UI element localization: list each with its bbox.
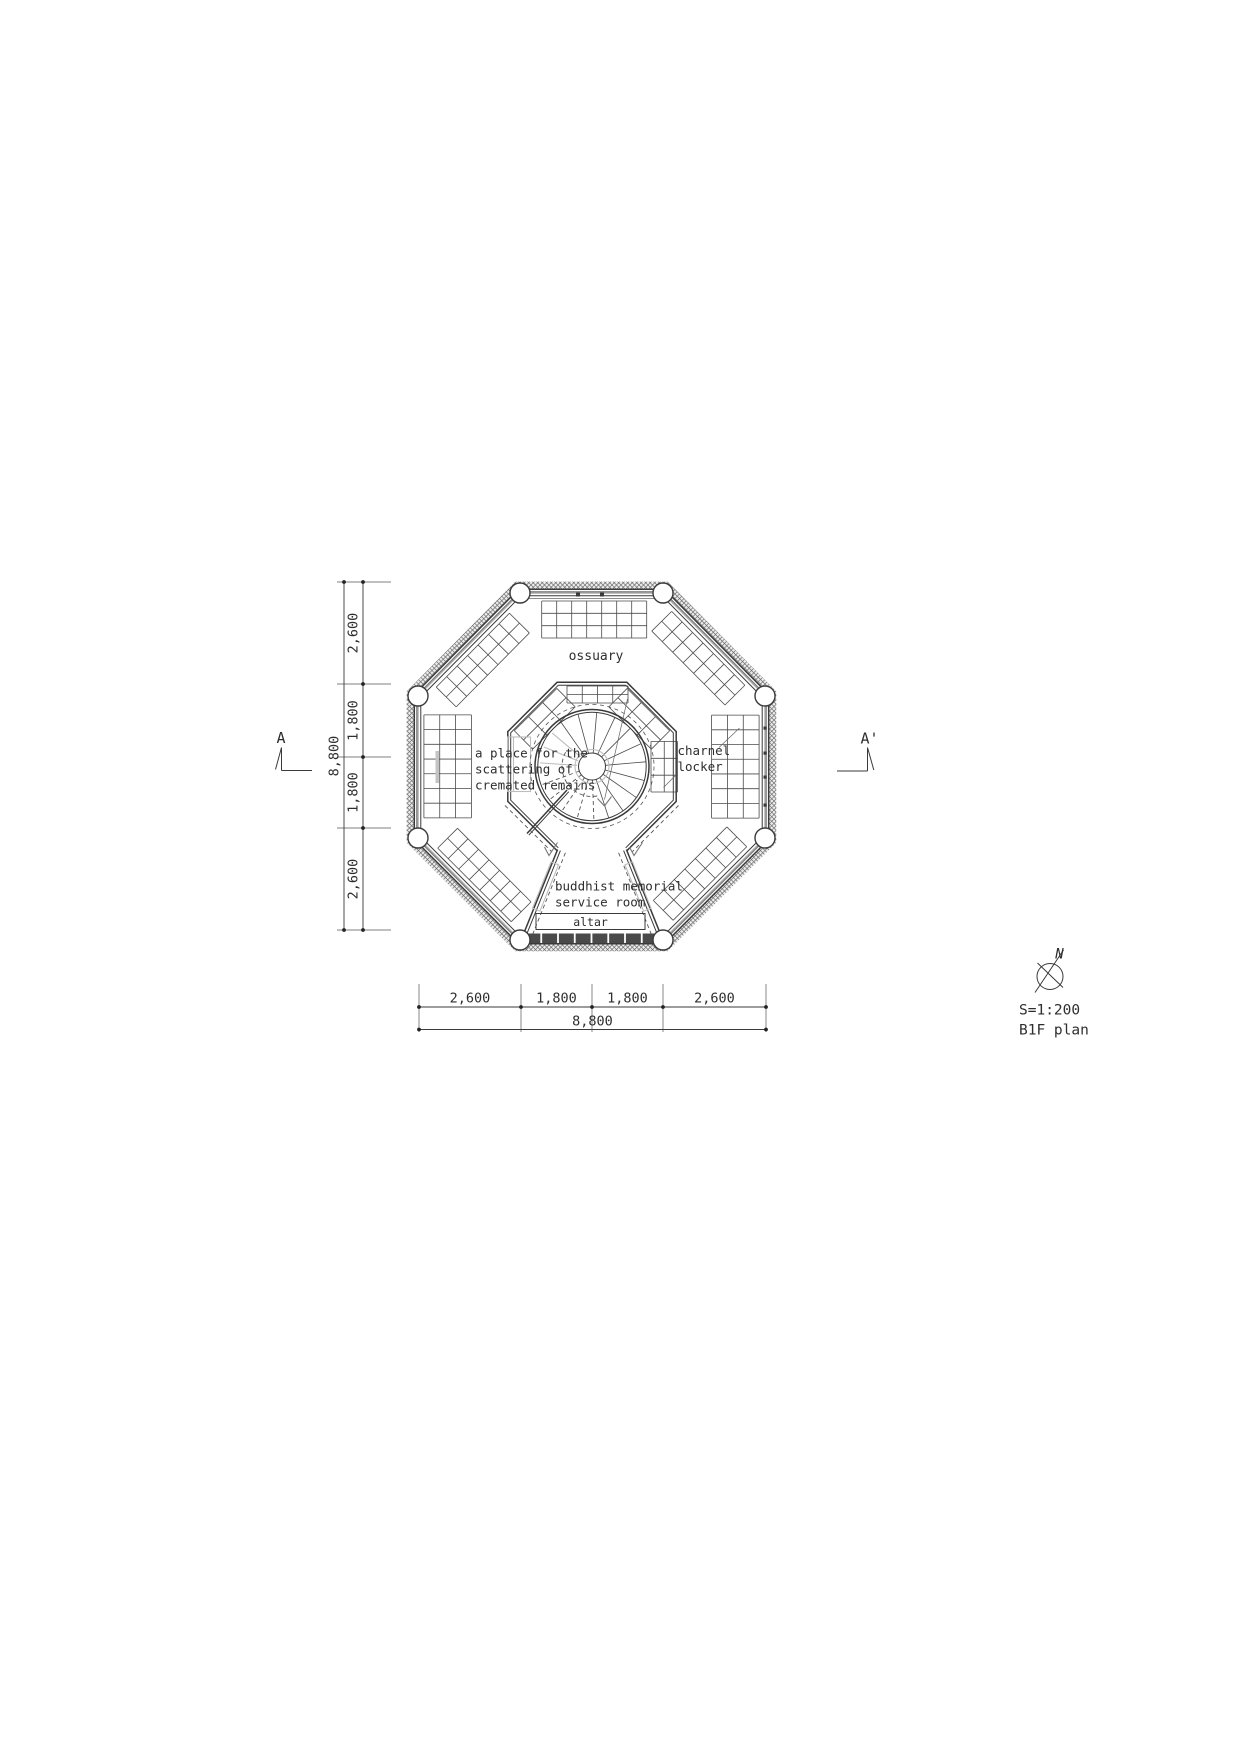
north-label: N <box>1054 947 1064 963</box>
section-marker-a-prime-label: A' <box>860 730 878 748</box>
plan-annotations: ossuary a place for the scattering of cr… <box>276 613 1088 1039</box>
label-scattering-line2: scattering of <box>475 762 573 777</box>
dim-left-seg3: 2,600 <box>346 859 362 900</box>
scale-text: S=1:200 <box>1019 1003 1080 1019</box>
dim-left-seg2: 1,800 <box>346 772 362 813</box>
label-altar: altar <box>573 915 608 929</box>
b1f-floor-plan-drawing: ossuary a place for the scattering of cr… <box>0 0 1240 1753</box>
dim-bottom-seg2: 1,800 <box>607 991 648 1007</box>
dim-left-overall: 8,800 <box>327 736 343 777</box>
label-scattering-line1: a place for the <box>475 746 588 761</box>
floor-text: B1F plan <box>1019 1023 1089 1039</box>
label-ossuary: ossuary <box>569 649 624 664</box>
dim-bottom-seg0: 2,600 <box>450 991 491 1007</box>
section-marker-a-label: A <box>276 729 285 747</box>
plan-linework <box>276 580 1064 1032</box>
label-scattering-line3: cremated remains <box>475 778 595 793</box>
dim-left-seg0: 2,600 <box>346 613 362 654</box>
label-memorial-line1: buddhist memorial <box>555 879 683 894</box>
drawing-sheet: ossuary a place for the scattering of cr… <box>0 0 1240 1753</box>
label-charnel-line1: charnel <box>678 743 731 758</box>
dim-left-seg1: 1,800 <box>346 700 362 741</box>
label-memorial-line2: service room <box>555 895 645 910</box>
dim-bottom-seg3: 2,600 <box>694 991 735 1007</box>
dim-bottom-seg1: 1,800 <box>536 991 577 1007</box>
dim-bottom-overall: 8,800 <box>572 1014 613 1030</box>
label-charnel-line2: locker <box>678 759 724 774</box>
